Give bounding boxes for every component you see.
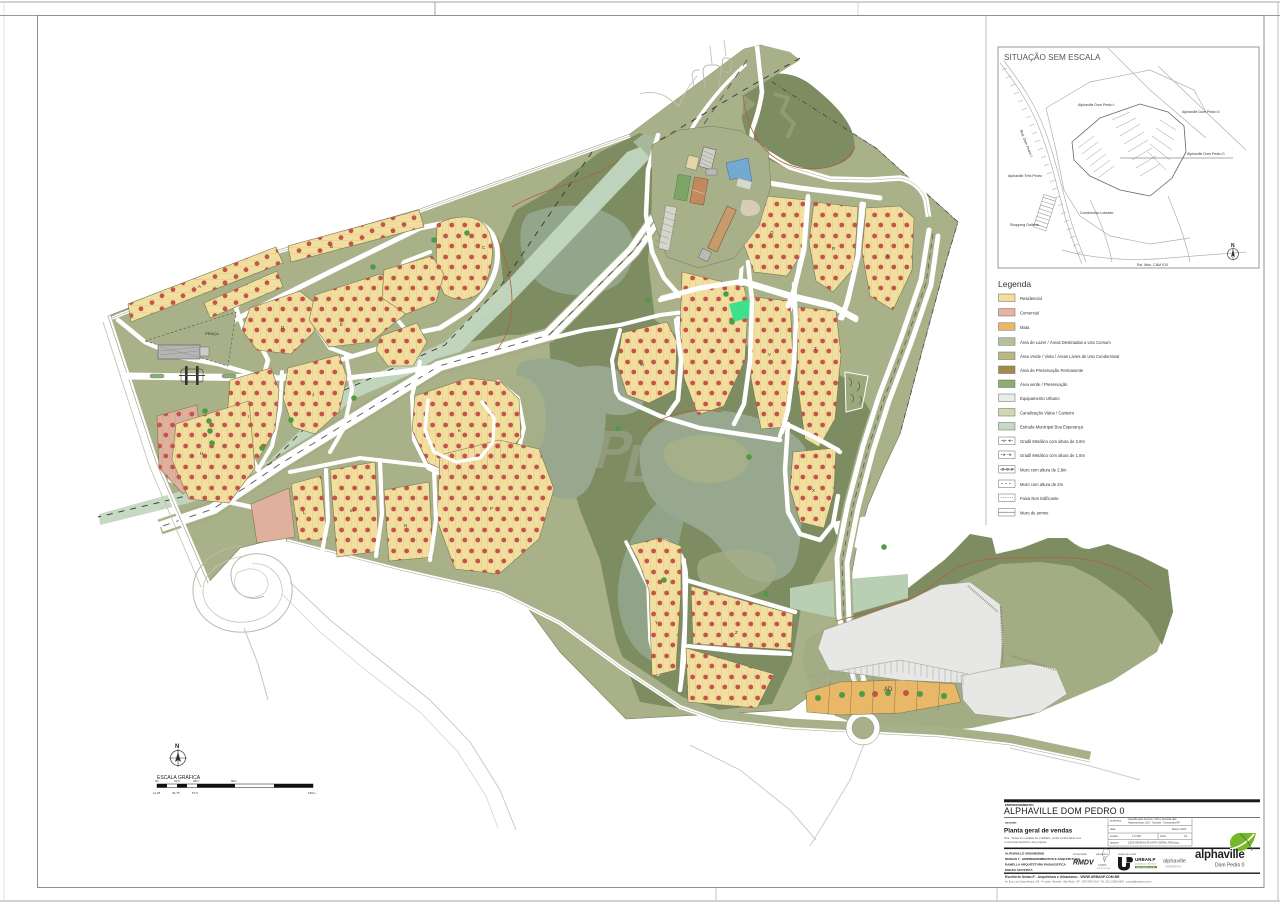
svg-text:45m: 45m [193,779,199,783]
svg-text:Y: Y [655,620,658,625]
svg-text:projeto de venda: projeto de venda [1118,853,1136,856]
svg-text:67,5: 67,5 [192,791,198,795]
svg-text:Muro com altura de 2,8m: Muro com altura de 2,8m [1020,468,1067,473]
svg-text:G: G [398,348,402,353]
svg-text:Alphaville Dom Pedro I: Alphaville Dom Pedro I [1078,103,1115,107]
svg-text:Estrada Municipal Boa Esperanç: Estrada Municipal Boa Esperança [1020,425,1084,430]
svg-text:N: N [175,744,179,750]
svg-text:Shopping Galleria: Shopping Galleria [1010,223,1039,227]
svg-text:WWW.URBANP.COM.BR: WWW.URBANP.COM.BR [1136,866,1156,869]
svg-text:S: S [886,253,889,258]
svg-text:incorporação: incorporação [1073,853,1087,856]
svg-text:11,25: 11,25 [153,791,161,795]
svg-text:B: B [330,244,333,249]
svg-text:Mata: Mata [1020,325,1030,330]
svg-text:180m: 180m [308,791,316,795]
svg-text:U: U [712,348,715,353]
svg-text:J: J [312,392,314,397]
svg-text:Adamantinas, 100 - Sousas - Ca: Adamantinas, 100 - Sousas - Campinas/SP [1128,821,1180,825]
svg-text:Condomínio Loteado: Condomínio Loteado [1080,211,1113,215]
svg-text:Alphaville Três Pedro: Alphaville Três Pedro [1008,174,1042,178]
svg-text:K: K [458,428,461,433]
svg-text:ARQUITETURA: ARQUITETURA [1097,867,1111,870]
svg-text:P: P [490,506,493,511]
svg-text:22,5: 22,5 [174,779,180,783]
svg-text:AD: AD [884,687,893,693]
svg-text:Área Verde / Viela / Áreas Liv: Área Verde / Viela / Áreas Livres de Uso… [1020,354,1119,359]
svg-text:0m: 0m [155,779,160,783]
svg-text:endereço: endereço [1110,819,1122,823]
svg-text:A: A [198,284,201,289]
svg-text:Canalização Viária / Canteiro: Canalização Viária / Canteiro [1020,411,1075,416]
svg-text:Planta geral de vendas: Planta geral de vendas [1004,828,1073,835]
svg-text:Escritório Urban.P - Arquitetu: Escritório Urban.P - Arquitetura e Urban… [1005,875,1120,879]
svg-text:H: H [200,451,203,456]
svg-text:1:2.250: 1:2.250 [1132,834,1141,838]
svg-text:33,75: 33,75 [172,791,180,795]
svg-text:alphaville: alphaville [1195,849,1244,861]
svg-text:Dom Pedro 0: Dom Pedro 0 [1215,863,1245,869]
svg-text:Alphaville Dom Pedro 0: Alphaville Dom Pedro 0 [1187,152,1225,156]
svg-text:I: I [248,414,249,419]
svg-text:PRAÇA: PRAÇA [205,331,219,336]
svg-text:X: X [812,488,815,493]
svg-text:arquivo: arquivo [1110,841,1119,845]
svg-text:arquitetura e urbanismo: arquitetura e urbanismo [1135,863,1157,866]
svg-text:Avenida das Árvores, 100 e Ave: Avenida das Árvores, 100 e Avenida das [1128,817,1177,821]
svg-text:ALPHAVILLE URBANISMO: ALPHAVILLE URBANISMO [1005,852,1045,856]
svg-text:ALPHAVILLE DOM PEDRO 0: ALPHAVILLE DOM PEDRO 0 [1004,806,1125,816]
svg-text:T: T [814,346,817,351]
svg-text:ENGEA ACUSTICA: ENGEA ACUSTICA [1005,868,1033,872]
svg-text:M: M [350,508,354,513]
svg-text:folha: folha [1160,834,1166,838]
svg-text:urbanismo: urbanismo [1165,865,1181,869]
svg-text:RAMELLA ARQUITETURA PAISAGISTI: RAMELLA ARQUITETURA PAISAGISTICA [1005,863,1067,867]
svg-text:O: O [770,230,774,235]
svg-text:Muro com altura de 2m: Muro com altura de 2m [1020,482,1064,487]
svg-text:90m: 90m [231,779,237,783]
svg-text:A1: A1 [1184,834,1188,838]
svg-text:data: data [1110,827,1116,831]
svg-text:V: V [768,352,771,357]
svg-text:Legenda: Legenda [998,279,1031,289]
svg-text:Comercial: Comercial [1020,311,1039,316]
svg-text:E: E [340,322,343,327]
svg-text:Muro de arrimo: Muro de arrimo [1020,511,1049,516]
svg-text:2203-VENDAS-PLANTA-GERAL-R00.d: 2203-VENDAS-PLANTA-GERAL-R00.dwg [1128,841,1179,845]
svg-text:assunto: assunto [1005,821,1017,825]
svg-text:Z: Z [735,630,738,635]
svg-text:Equipamento Urbano: Equipamento Urbano [1020,396,1060,401]
svg-text:Área de Lazer / Áreas Destinad: Área de Lazer / Áreas Destinadas a Uso C… [1020,340,1111,345]
svg-text:Faixa Non Edificante: Faixa Non Edificante [1020,496,1059,501]
svg-text:RMDV: RMDV [1073,860,1095,867]
svg-text:F: F [420,277,423,282]
svg-text:escala: escala [1110,834,1118,838]
svg-text:Gradil Metálico com altura de: Gradil Metálico com altura de 2,8m [1020,439,1085,444]
svg-text:URBAN.P: URBAN.P [1135,857,1156,862]
svg-text:SITUAÇÃO SEM ESCALA: SITUAÇÃO SEM ESCALA [1004,52,1101,62]
svg-text:Área de Preservação Permanente: Área de Preservação Permanente [1020,368,1084,373]
svg-text:DESIGN 7 - EMPREENDIMENTOS E A: DESIGN 7 - EMPREENDIMENTOS E ARQUITETURA [1005,857,1081,861]
svg-text:Gradil Metálico com altura de: Gradil Metálico com altura de 1,8m [1020,453,1085,458]
svg-text:Est. Mun. CAM 010: Est. Mun. CAM 010 [1137,263,1168,267]
svg-text:Alphaville Dom Pedro II: Alphaville Dom Pedro II [1182,110,1220,114]
svg-text:N: N [404,523,407,528]
svg-text:CAPPA: CAPPA [1098,863,1107,867]
svg-text:Residencial: Residencial [1020,296,1042,301]
svg-text:Av. Eng. Luiz Carlos Berrini,: Av. Eng. Luiz Carlos Berrini, 105 - 4° a… [1005,881,1152,884]
svg-text:Área verde / Preservação: Área verde / Preservação [1020,382,1068,387]
svg-text:Março 2022: Março 2022 [1172,827,1187,831]
svg-text:o memorial descritivo dos proj: o memorial descritivo dos projetos. [1004,840,1047,844]
